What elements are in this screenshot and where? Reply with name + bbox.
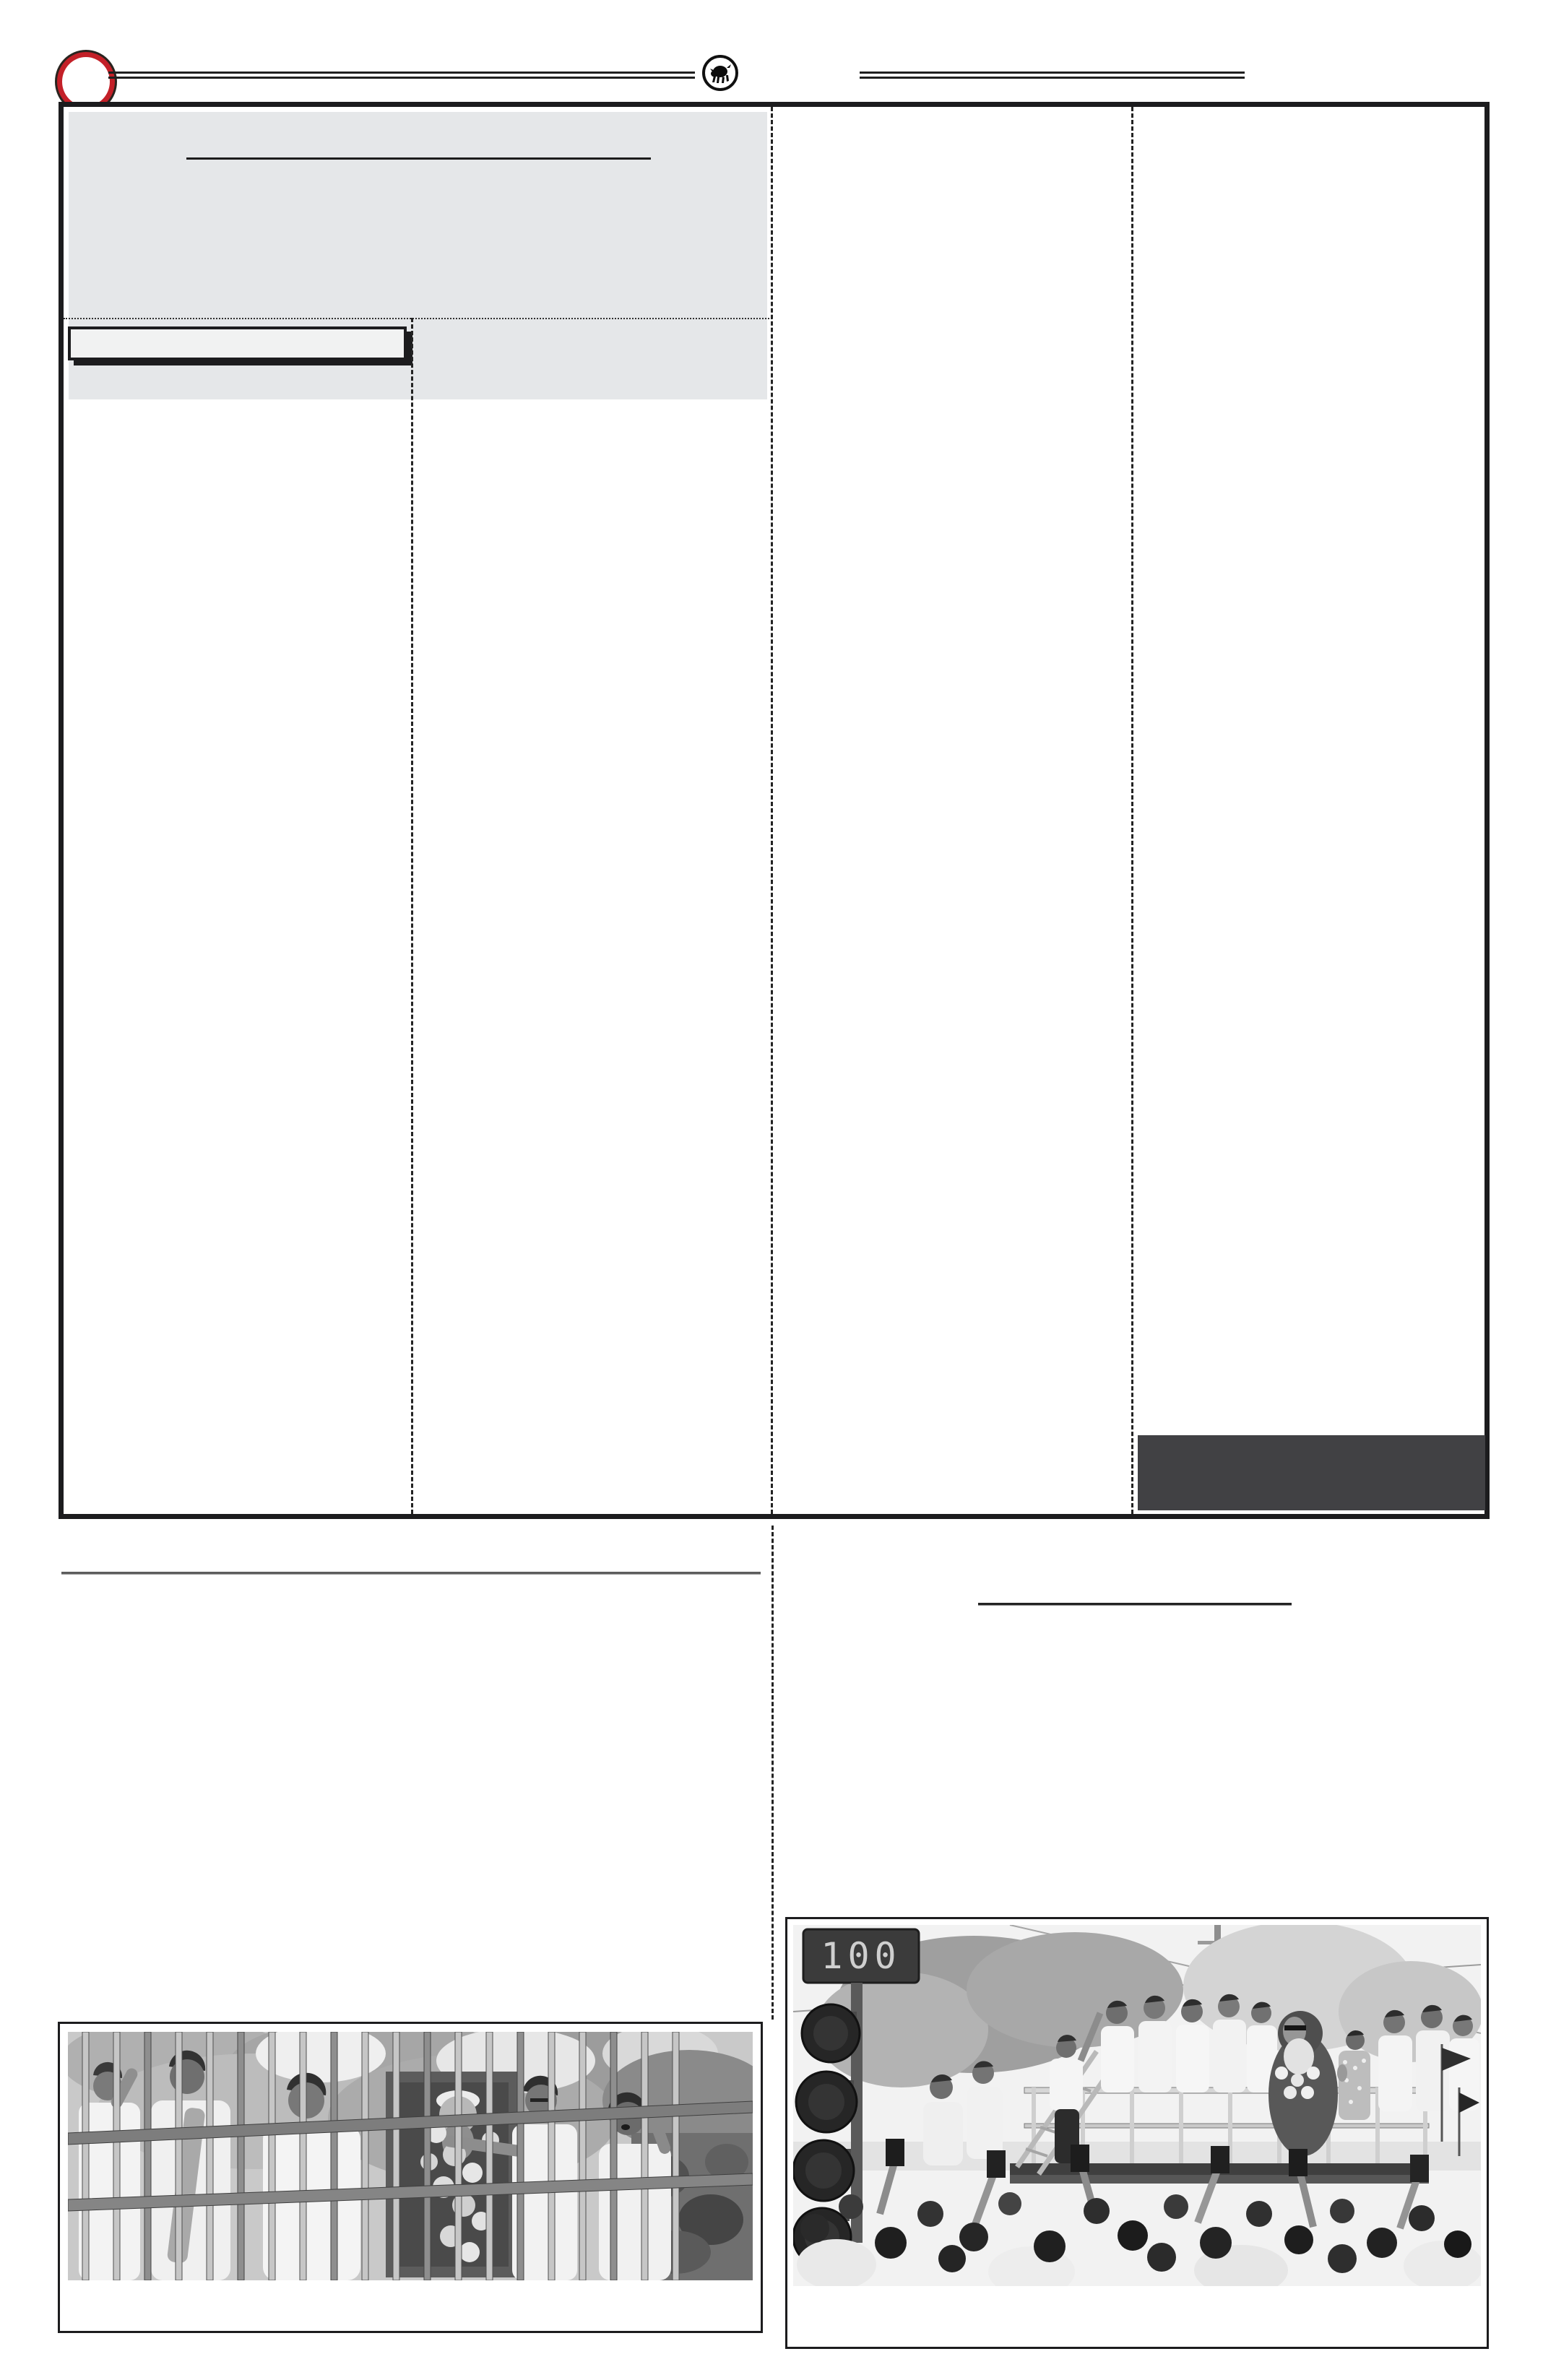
news-photo-left[interactable] xyxy=(58,2022,763,2333)
section-rule-right xyxy=(978,1603,1292,1606)
bull-glyph xyxy=(708,61,732,85)
newspaper-page: 100 xyxy=(0,0,1543,2380)
column-divider-2 xyxy=(771,107,773,1514)
caged-statue xyxy=(386,2072,519,2277)
masthead-rule-right xyxy=(860,72,1245,79)
column-divider-lower xyxy=(771,1526,774,2020)
photo-right-image: 100 xyxy=(793,1925,1481,2286)
headline-underline-rule xyxy=(186,157,651,160)
column-divider-1 xyxy=(411,318,413,1514)
horizontal-dotted-rule xyxy=(64,318,772,319)
photo-left-caption xyxy=(88,2285,732,2314)
traffic-countdown: 100 xyxy=(821,1935,901,1977)
photo-left-image xyxy=(68,2032,753,2280)
article-board xyxy=(59,102,1490,1519)
bull-emblem-icon xyxy=(702,55,738,91)
news-photo-right[interactable]: 100 xyxy=(785,1917,1489,2349)
promo-panel[interactable] xyxy=(68,326,407,360)
photo-right-caption xyxy=(816,2290,1459,2319)
dark-ad-panel[interactable] xyxy=(1138,1435,1485,1510)
column-divider-3 xyxy=(1131,107,1133,1514)
section-rule-left xyxy=(61,1572,761,1575)
masthead-rule-left xyxy=(108,72,695,79)
